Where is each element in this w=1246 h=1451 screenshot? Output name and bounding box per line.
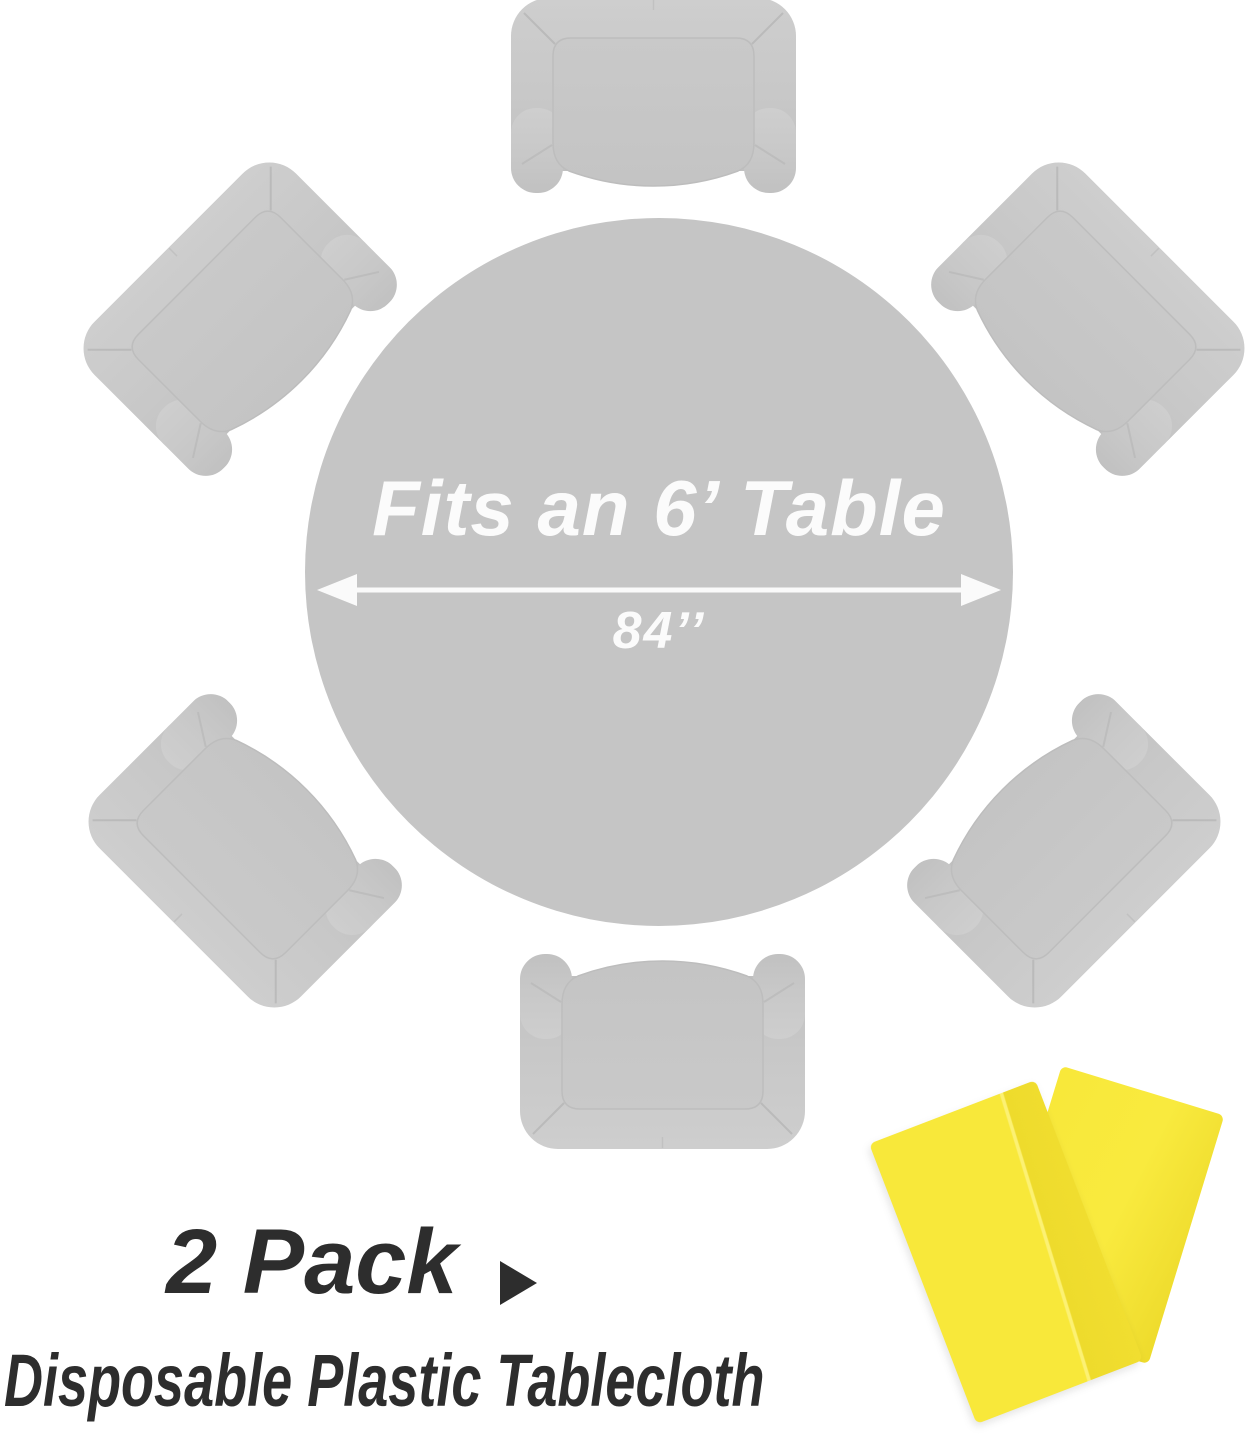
fits-table-label: Fits an 6’ Table: [305, 468, 1013, 548]
diameter-label: 84’’: [305, 601, 1013, 661]
pack-count-label: 2 Pack: [166, 1213, 458, 1312]
folded-tablecloths-icon: [830, 1055, 1246, 1451]
right-pointer-triangle-icon: [500, 1261, 537, 1305]
pack-caption: 2 Pack: [166, 1213, 537, 1312]
round-table-top: Fits an 6’ Table 84’’: [305, 218, 1013, 926]
product-subtitle: Disposable Plastic Tablecloth: [4, 1341, 765, 1421]
armchair-top-view-icon: [511, 0, 796, 193]
tablecloth-product-diagram: Fits an 6’ Table 84’’ 2 Pack Disposable …: [0, 0, 1246, 1451]
armchair-top-view-icon: [520, 954, 805, 1149]
